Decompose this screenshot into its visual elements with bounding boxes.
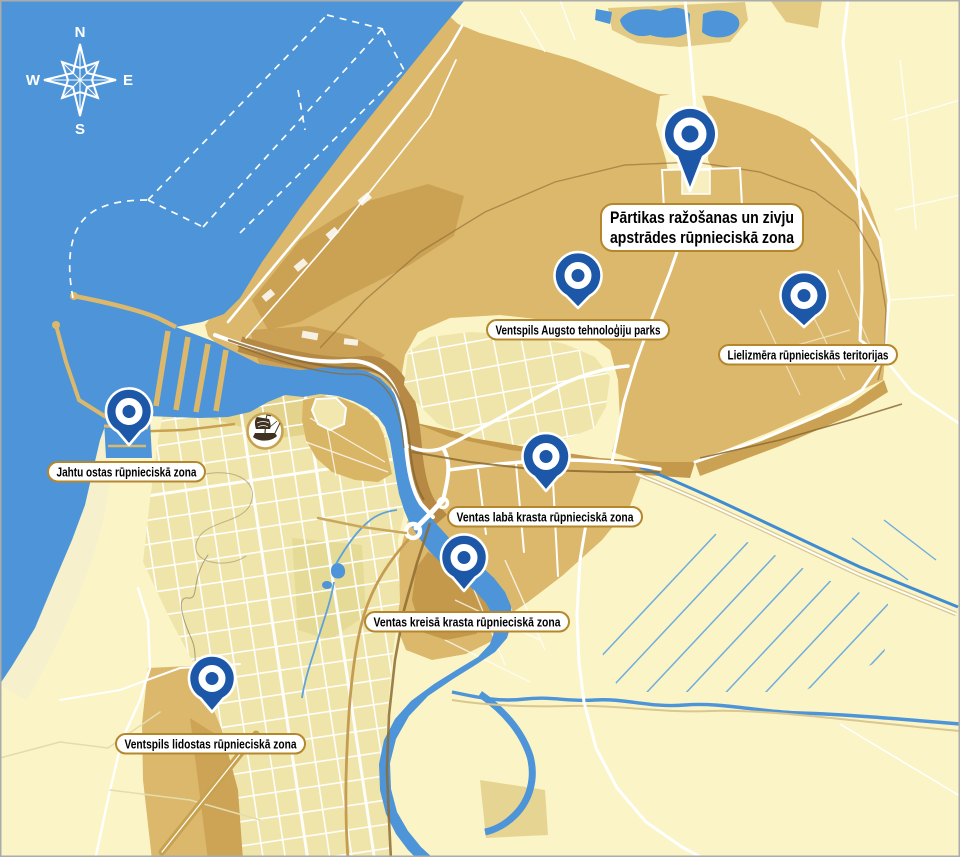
svg-text:Ventspils Augsto tehnoloģiju p: Ventspils Augsto tehnoloģiju parks bbox=[496, 322, 661, 337]
svg-text:Lielizmēra rūpnieciskās terito: Lielizmēra rūpnieciskās teritorijas bbox=[728, 347, 889, 362]
svg-text:W: W bbox=[26, 72, 41, 89]
svg-text:Ventas labā krasta rūpnieciskā: Ventas labā krasta rūpnieciskā zona bbox=[457, 509, 635, 524]
svg-text:Jahtu ostas rūpnieciskā zona: Jahtu ostas rūpnieciskā zona bbox=[57, 464, 198, 479]
svg-text:Ventspils lidostas rūpnieciskā: Ventspils lidostas rūpnieciskā zona bbox=[125, 736, 298, 751]
svg-text:S: S bbox=[75, 121, 85, 138]
svg-text:E: E bbox=[123, 72, 133, 89]
svg-text:Pārtikas ražošanas un zivju: Pārtikas ražošanas un zivju bbox=[610, 209, 794, 227]
svg-text:Ventas kreisā krasta rūpniecis: Ventas kreisā krasta rūpnieciskā zona bbox=[374, 614, 562, 629]
svg-text:N: N bbox=[75, 24, 86, 41]
svg-text:apstrādes rūpnieciskā zona: apstrādes rūpnieciskā zona bbox=[610, 229, 795, 247]
